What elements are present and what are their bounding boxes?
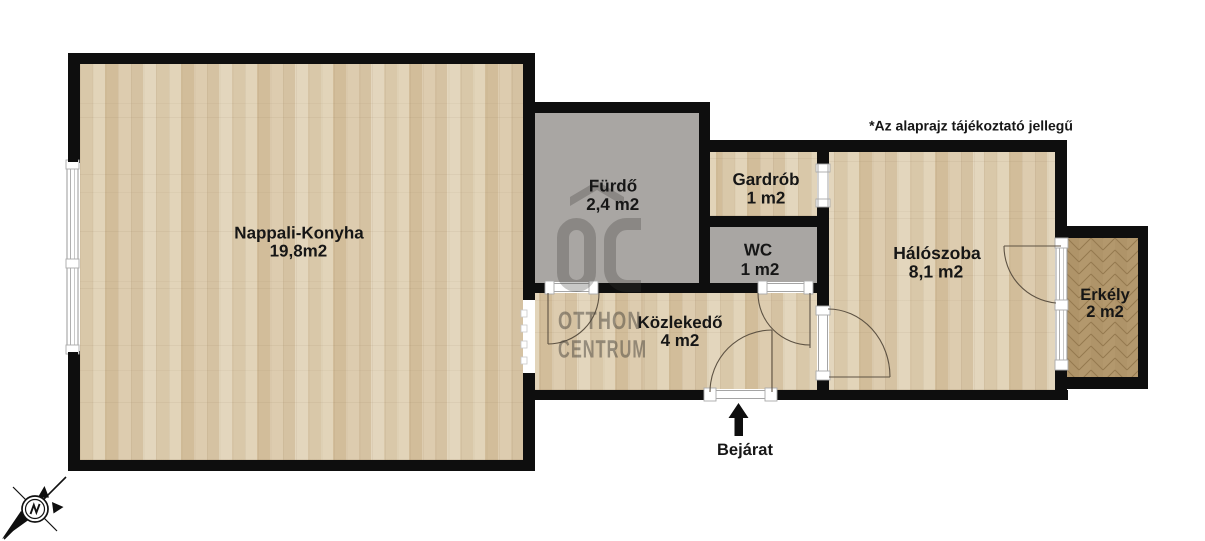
svg-text:Fürdő: Fürdő: [589, 177, 637, 196]
svg-text:1 m2: 1 m2: [741, 260, 780, 279]
svg-text:WC: WC: [744, 241, 772, 260]
svg-text:1 m2: 1 m2: [747, 189, 786, 208]
svg-text:2 m2: 2 m2: [1086, 303, 1124, 321]
svg-text:*Az alaprajz tájékoztató jelle: *Az alaprajz tájékoztató jellegű: [869, 118, 1073, 134]
svg-text:Közlekedő: Közlekedő: [637, 313, 722, 332]
svg-text:4 m2: 4 m2: [661, 331, 700, 350]
svg-text:Bejárat: Bejárat: [717, 441, 773, 459]
svg-text:8,1 m2: 8,1 m2: [909, 262, 964, 282]
svg-text:Nappali-Konyha: Nappali-Konyha: [234, 223, 364, 242]
svg-text:19,8m2: 19,8m2: [270, 242, 328, 261]
svg-text:Hálószoba: Hálószoba: [893, 243, 981, 263]
svg-text:Gardrób: Gardrób: [732, 170, 799, 189]
svg-text:Erkély: Erkély: [1080, 286, 1130, 304]
svg-text:2,4 m2: 2,4 m2: [586, 195, 639, 214]
